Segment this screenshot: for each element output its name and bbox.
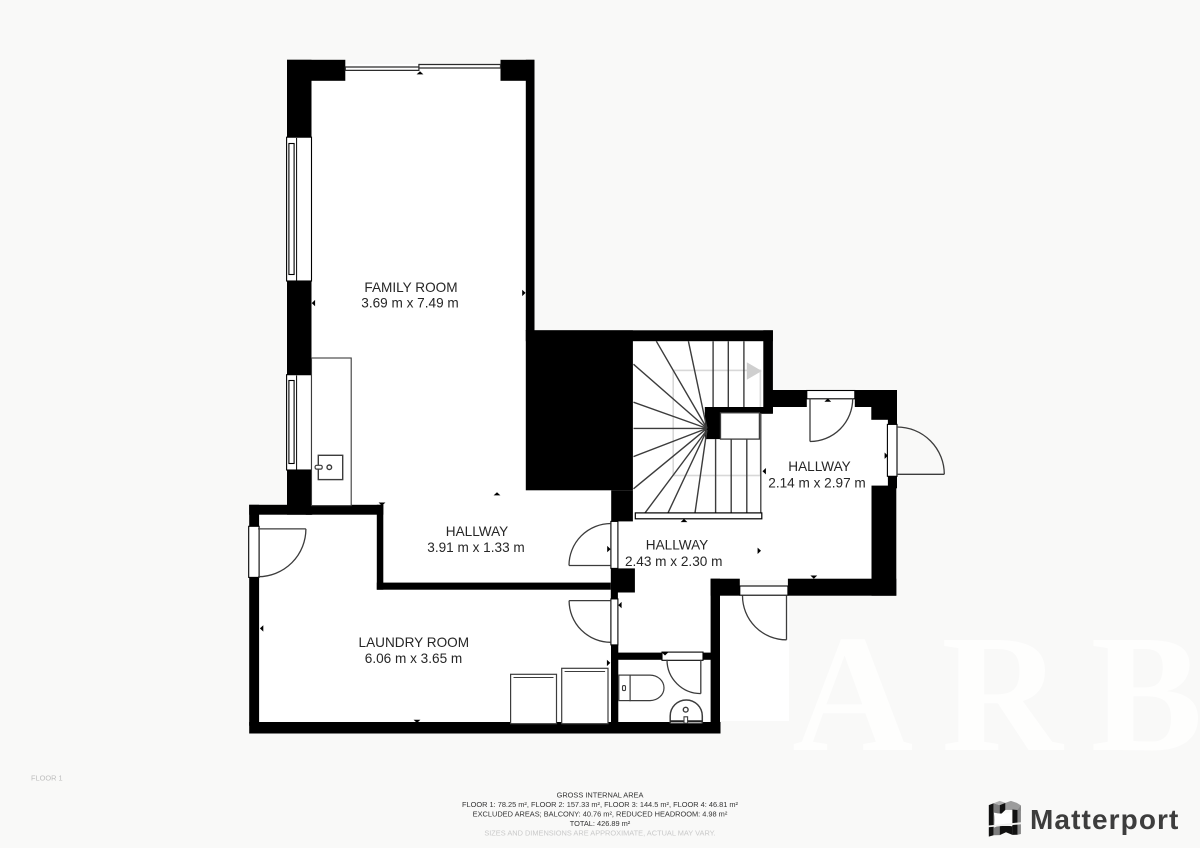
- svg-text:FLOOR 1: 78.25 m², FLOOR 2: 15: FLOOR 1: 78.25 m², FLOOR 2: 157.33 m², F…: [462, 800, 739, 809]
- svg-text:ARB: ARB: [792, 601, 1200, 787]
- svg-text:HALLWAY: HALLWAY: [788, 459, 850, 474]
- svg-text:2.43 m x 2.30 m: 2.43 m x 2.30 m: [625, 554, 722, 569]
- svg-text:TOTAL: 426.89 m²: TOTAL: 426.89 m²: [570, 819, 631, 828]
- svg-text:LAUNDRY ROOM: LAUNDRY ROOM: [359, 635, 470, 650]
- svg-text:FLOOR 1: FLOOR 1: [31, 774, 63, 783]
- svg-text:HALLWAY: HALLWAY: [646, 537, 708, 552]
- svg-text:3.69 m x 7.49 m: 3.69 m x 7.49 m: [361, 296, 458, 311]
- svg-text:GROSS INTERNAL AREA: GROSS INTERNAL AREA: [557, 791, 644, 800]
- svg-text:Matterport: Matterport: [1030, 804, 1179, 835]
- svg-text:HALLWAY: HALLWAY: [446, 524, 508, 539]
- svg-text:FAMILY ROOM: FAMILY ROOM: [364, 280, 457, 295]
- svg-text:6.06 m x 3.65 m: 6.06 m x 3.65 m: [365, 651, 462, 666]
- svg-text:EXCLUDED AREAS; BALCONY: 40.76: EXCLUDED AREAS; BALCONY: 40.76 m², REDUC…: [473, 810, 728, 819]
- svg-text:2.14 m x 2.97 m: 2.14 m x 2.97 m: [768, 476, 865, 491]
- svg-text:SIZES AND DIMENSIONS ARE APPRO: SIZES AND DIMENSIONS ARE APPROXIMATE, AC…: [484, 829, 715, 838]
- svg-text:3.91 m x 1.33 m: 3.91 m x 1.33 m: [427, 540, 524, 555]
